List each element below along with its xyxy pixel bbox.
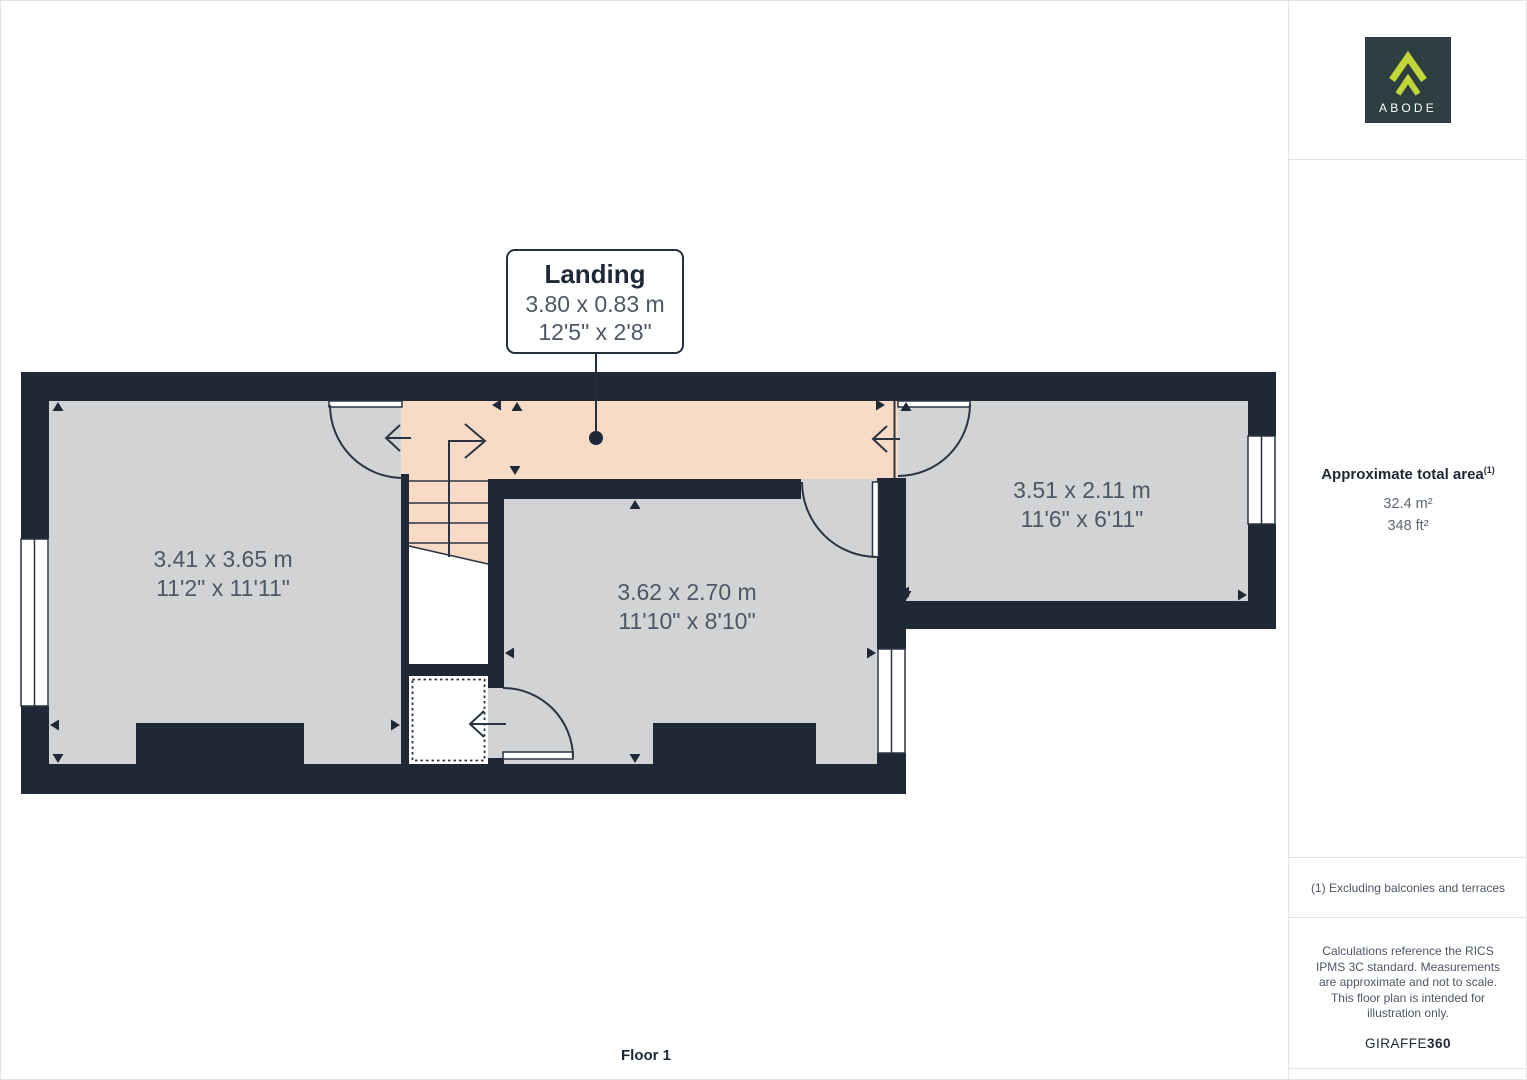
door-opening-middle xyxy=(801,479,877,499)
area-title-text: Approximate total area xyxy=(1321,466,1484,483)
floor-label: Floor 1 xyxy=(1,1047,1291,1064)
disclaimer-text: Calculations reference the RICS IPMS 3C … xyxy=(1310,944,1506,1022)
brand-name: GIRAFFE xyxy=(1365,1036,1427,1051)
wall-stairs-right-upper xyxy=(488,479,504,688)
floor-plan-drawing xyxy=(1,1,1291,1080)
door-leaf-left-room xyxy=(329,401,402,407)
sidebar: ABODE Approximate total area(1) 32.4 m² … xyxy=(1288,1,1527,1080)
brand-line: GIRAFFE360 xyxy=(1310,1036,1506,1052)
area-section: Approximate total area(1) 32.4 m² 348 ft… xyxy=(1289,160,1527,858)
wall-landing-middle xyxy=(488,479,801,499)
room-label-left: 3.41 x 3.65 m 11'2" x 11'11" xyxy=(153,545,292,603)
callout-dot xyxy=(589,431,603,445)
logo-section: ABODE xyxy=(1289,1,1527,160)
footnote-text: (1) Excluding balconies and terraces xyxy=(1311,881,1505,895)
wall-stairs-right-lower xyxy=(488,758,504,764)
stairs-void xyxy=(409,546,488,664)
room-dim-metric: 3.41 x 3.65 m xyxy=(153,545,292,574)
wall-middle-right-lower xyxy=(877,753,906,764)
room-label-middle: 3.62 x 2.70 m 11'10" x 8'10" xyxy=(617,578,756,636)
wall-right-lower xyxy=(1248,524,1276,629)
floor-plan-page: 3.41 x 3.65 m 11'2" x 11'11" 3.62 x 2.70… xyxy=(0,0,1527,1080)
callout-imperial: 12'5" x 2'8" xyxy=(508,318,682,346)
wall-left-lower xyxy=(21,706,49,764)
cupboard-floor xyxy=(409,676,488,764)
wall-right-upper xyxy=(1248,401,1276,436)
logo-wordmark: ABODE xyxy=(1379,101,1437,115)
wall-stairs-left xyxy=(401,474,409,764)
footnote-section: (1) Excluding balconies and terraces xyxy=(1289,858,1527,918)
room-dim-metric: 3.51 x 2.11 m xyxy=(1013,476,1151,505)
wall-bottom-main xyxy=(21,764,906,794)
room-dim-imperial: 11'6" x 6'11" xyxy=(1013,505,1151,534)
door-leaf-cupboard xyxy=(503,752,573,759)
room-dim-imperial: 11'2" x 11'11" xyxy=(153,574,292,603)
wall-left-upper xyxy=(21,401,49,539)
area-value-metric: 32.4 m² xyxy=(1289,493,1527,515)
window-right xyxy=(1248,436,1275,524)
window-bottom-middle xyxy=(878,649,905,753)
door-leaf-right-room xyxy=(898,401,970,407)
area-title-superscript: (1) xyxy=(1484,465,1495,475)
area-value-imperial: 348 ft² xyxy=(1289,515,1527,537)
wall-top xyxy=(21,372,1276,401)
callout-room-name: Landing xyxy=(508,258,682,290)
room-dim-metric: 3.62 x 2.70 m xyxy=(617,578,756,607)
area-title: Approximate total area(1) xyxy=(1289,465,1527,483)
abode-logo: ABODE xyxy=(1365,37,1451,123)
room-dim-imperial: 11'10" x 8'10" xyxy=(617,607,756,636)
door-leaf-middle-room xyxy=(873,482,879,557)
floor-plan: 3.41 x 3.65 m 11'2" x 11'11" 3.62 x 2.70… xyxy=(1,1,1291,1080)
landing-callout: Landing 3.80 x 0.83 m 12'5" x 2'8" xyxy=(506,249,684,354)
window-left xyxy=(21,539,48,706)
wall-bottom-right-room xyxy=(877,601,1276,629)
brand-name-bold: 360 xyxy=(1427,1036,1451,1051)
disclaimer-section: Calculations reference the RICS IPMS 3C … xyxy=(1289,918,1527,1069)
callout-metric: 3.80 x 0.83 m xyxy=(508,290,682,318)
chimney-left-room xyxy=(136,723,304,764)
chimney-middle-room xyxy=(653,723,816,764)
room-label-right: 3.51 x 2.11 m 11'6" x 6'11" xyxy=(1013,476,1151,534)
